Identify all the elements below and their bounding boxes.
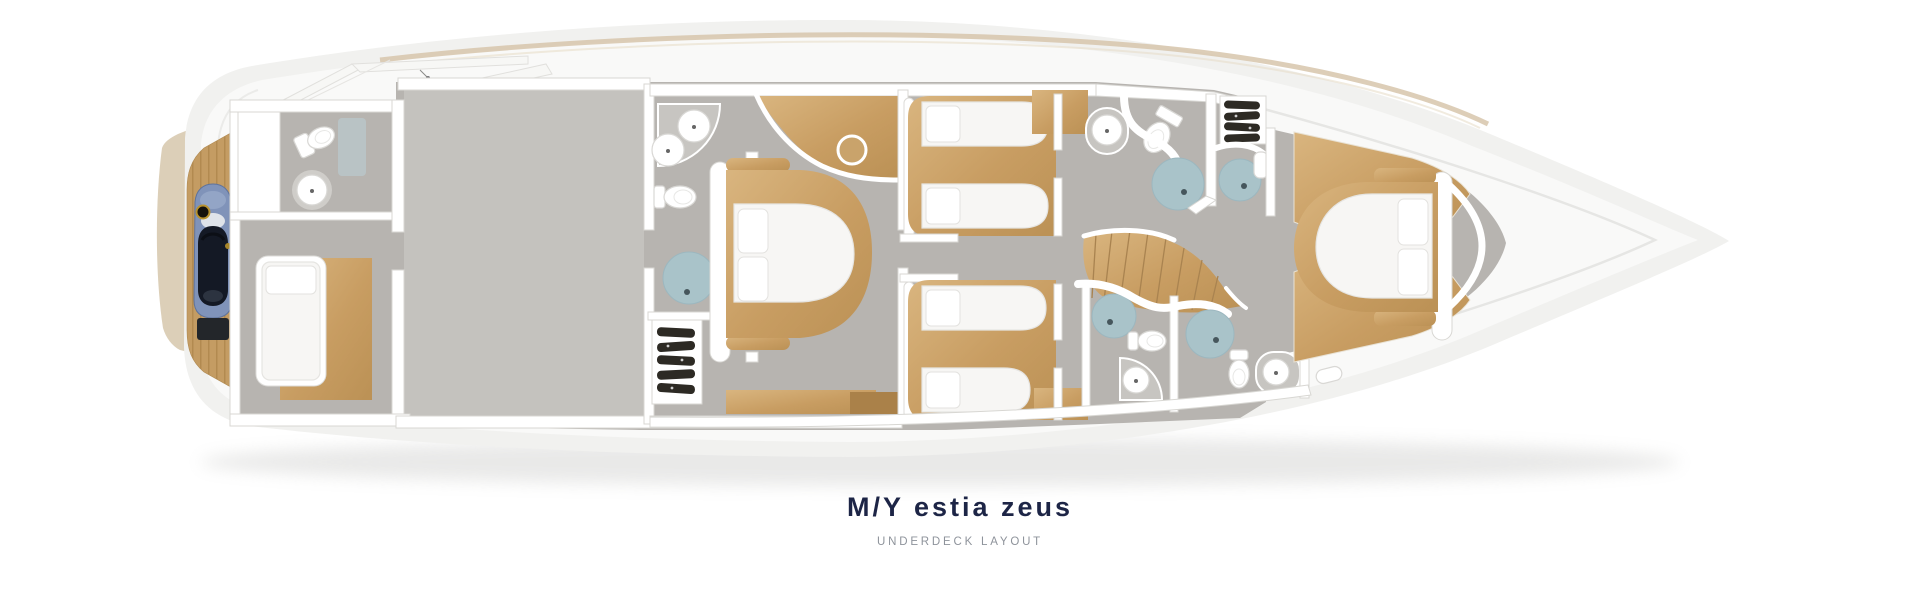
pillow	[1398, 199, 1428, 245]
corridor-wall	[900, 234, 958, 242]
round-shower	[663, 252, 715, 304]
crew-right-wall-upper	[392, 100, 404, 232]
toilet-icon	[1128, 331, 1166, 351]
twin-bed	[922, 102, 1048, 146]
crew-top-wall	[230, 100, 400, 112]
crew-bottom-wall	[230, 414, 410, 426]
crew-cabin	[256, 256, 372, 400]
crew-mid-wall	[230, 212, 398, 220]
sink-icon	[1123, 367, 1149, 393]
sink-icon	[652, 134, 684, 166]
sink-icon	[1263, 359, 1289, 385]
engine-right-wall-upper	[644, 84, 654, 230]
sink-icon	[1092, 115, 1122, 145]
bath-left-wall	[1082, 286, 1090, 412]
round-shower	[1186, 310, 1234, 358]
crew-single-bed	[256, 256, 326, 386]
twin-bed	[922, 368, 1030, 412]
master-wardrobe	[652, 320, 702, 404]
jetski-gauge	[197, 206, 210, 219]
crew-cabinet	[238, 112, 280, 214]
toilet-icon	[654, 186, 696, 208]
pillow	[926, 106, 960, 142]
twin-bed	[922, 184, 1048, 228]
twin-wall	[1054, 284, 1062, 340]
forward-top-wall	[650, 84, 1098, 96]
pillow	[738, 209, 768, 253]
twin-wall	[1054, 178, 1062, 236]
round-stool	[838, 136, 866, 164]
forward-wardrobe	[1220, 96, 1266, 144]
pillow	[266, 266, 316, 294]
pillow	[738, 257, 768, 301]
engine-room-floor	[404, 90, 644, 420]
pillow	[926, 188, 960, 224]
pillow	[926, 372, 960, 408]
engine-top-wall	[398, 78, 650, 90]
round-shower	[1092, 294, 1136, 338]
toilet-icon	[1229, 350, 1249, 388]
twin-wall	[1054, 94, 1062, 150]
pillow	[1398, 249, 1428, 295]
twin-bed	[922, 286, 1046, 330]
crew-right-wall-lower	[392, 270, 404, 424]
pillow	[926, 290, 960, 326]
sink-icon	[292, 170, 332, 210]
swim-platform-trim	[157, 130, 188, 352]
bath-divider-wall	[1170, 296, 1178, 412]
vip-left-wall-upper	[1266, 128, 1275, 216]
yacht-underdeck-page: M/Y estia zeus UNDERDECK LAYOUT	[0, 0, 1920, 600]
deck-layout-subtitle: UNDERDECK LAYOUT	[0, 536, 1920, 548]
engine-bottom-wall	[396, 416, 650, 428]
crew-shower-panel	[338, 118, 366, 176]
sink-icon	[678, 110, 710, 142]
yacht-name-title: M/Y estia zeus	[0, 492, 1920, 523]
jetski-mat	[197, 318, 229, 340]
